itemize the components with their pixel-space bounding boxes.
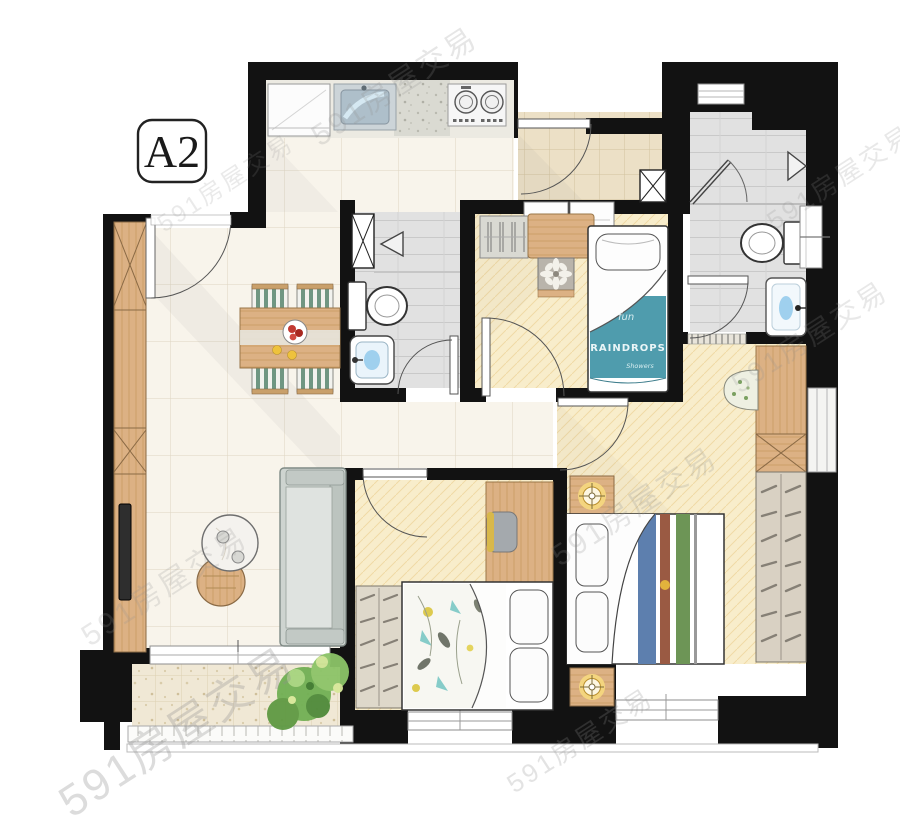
floorplan-page: fun RAINDROPS Showers bbox=[0, 0, 900, 819]
unit-label: A2 bbox=[138, 120, 206, 182]
pillow bbox=[596, 234, 660, 270]
blanket-stripe bbox=[638, 514, 656, 664]
unit-label-text: A2 bbox=[144, 126, 200, 177]
pillow bbox=[510, 648, 548, 702]
floorplan-drawing: fun RAINDROPS Showers bbox=[0, 0, 900, 819]
pillow bbox=[510, 590, 548, 644]
bed bbox=[402, 582, 553, 710]
pillow bbox=[576, 592, 608, 652]
dining-chair bbox=[252, 366, 288, 394]
nightstand bbox=[570, 668, 614, 706]
pipe-shaft bbox=[352, 214, 374, 268]
right-wall-window bbox=[808, 388, 836, 472]
stove bbox=[448, 84, 506, 126]
tv bbox=[119, 504, 131, 600]
wardrobe bbox=[756, 472, 806, 662]
bathroom-threshold bbox=[688, 334, 746, 344]
flower-stool bbox=[538, 258, 574, 297]
desk bbox=[528, 214, 594, 258]
eave-outline bbox=[127, 744, 818, 752]
corridor-floor bbox=[340, 402, 553, 468]
blanket-text-fun: fun bbox=[618, 312, 634, 323]
blanket-text-brand: RAINDROPS bbox=[590, 343, 666, 354]
bathroom-window bbox=[698, 84, 744, 104]
blanket-text-sub: Showers bbox=[626, 362, 654, 370]
desk-cushion bbox=[487, 512, 517, 552]
storage-cabinet bbox=[756, 434, 806, 472]
wardrobe bbox=[356, 586, 402, 708]
washbasin bbox=[350, 336, 394, 384]
pipe-shaft bbox=[640, 170, 666, 202]
dining-chair bbox=[297, 366, 333, 394]
sofa bbox=[280, 468, 346, 646]
toilet bbox=[741, 222, 802, 264]
hanger-cabinet bbox=[480, 216, 528, 258]
toilet bbox=[348, 282, 407, 330]
single-bed: fun RAINDROPS Showers bbox=[588, 226, 668, 392]
